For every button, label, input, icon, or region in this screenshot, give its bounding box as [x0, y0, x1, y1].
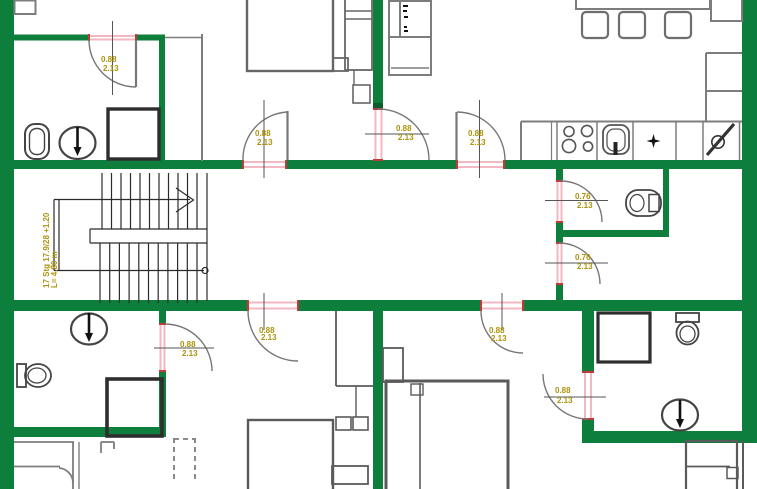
svg-text:2.13: 2.13	[257, 138, 273, 147]
svg-text:2.13: 2.13	[577, 262, 593, 271]
svg-text:2.13: 2.13	[557, 396, 573, 405]
svg-text:2.13: 2.13	[103, 64, 119, 73]
svg-text:2.13: 2.13	[577, 201, 593, 210]
svg-text:0.88: 0.88	[555, 386, 571, 395]
svg-text:0.88: 0.88	[101, 55, 117, 64]
svg-text:2.13: 2.13	[470, 138, 486, 147]
svg-text:0.76: 0.76	[575, 253, 591, 262]
svg-text:0.76: 0.76	[575, 192, 591, 201]
svg-text:0.88: 0.88	[396, 124, 412, 133]
svg-text:2.13: 2.13	[491, 334, 507, 343]
svg-text:0.88: 0.88	[180, 340, 196, 349]
svg-text:2.13: 2.13	[398, 133, 414, 142]
svg-text:L= 4.80 m: L= 4.80 m	[50, 251, 59, 288]
svg-text:0.88: 0.88	[255, 129, 271, 138]
svg-text:2.13: 2.13	[182, 349, 198, 358]
svg-text:0.88: 0.88	[468, 129, 484, 138]
svg-text:2.13: 2.13	[261, 333, 277, 342]
